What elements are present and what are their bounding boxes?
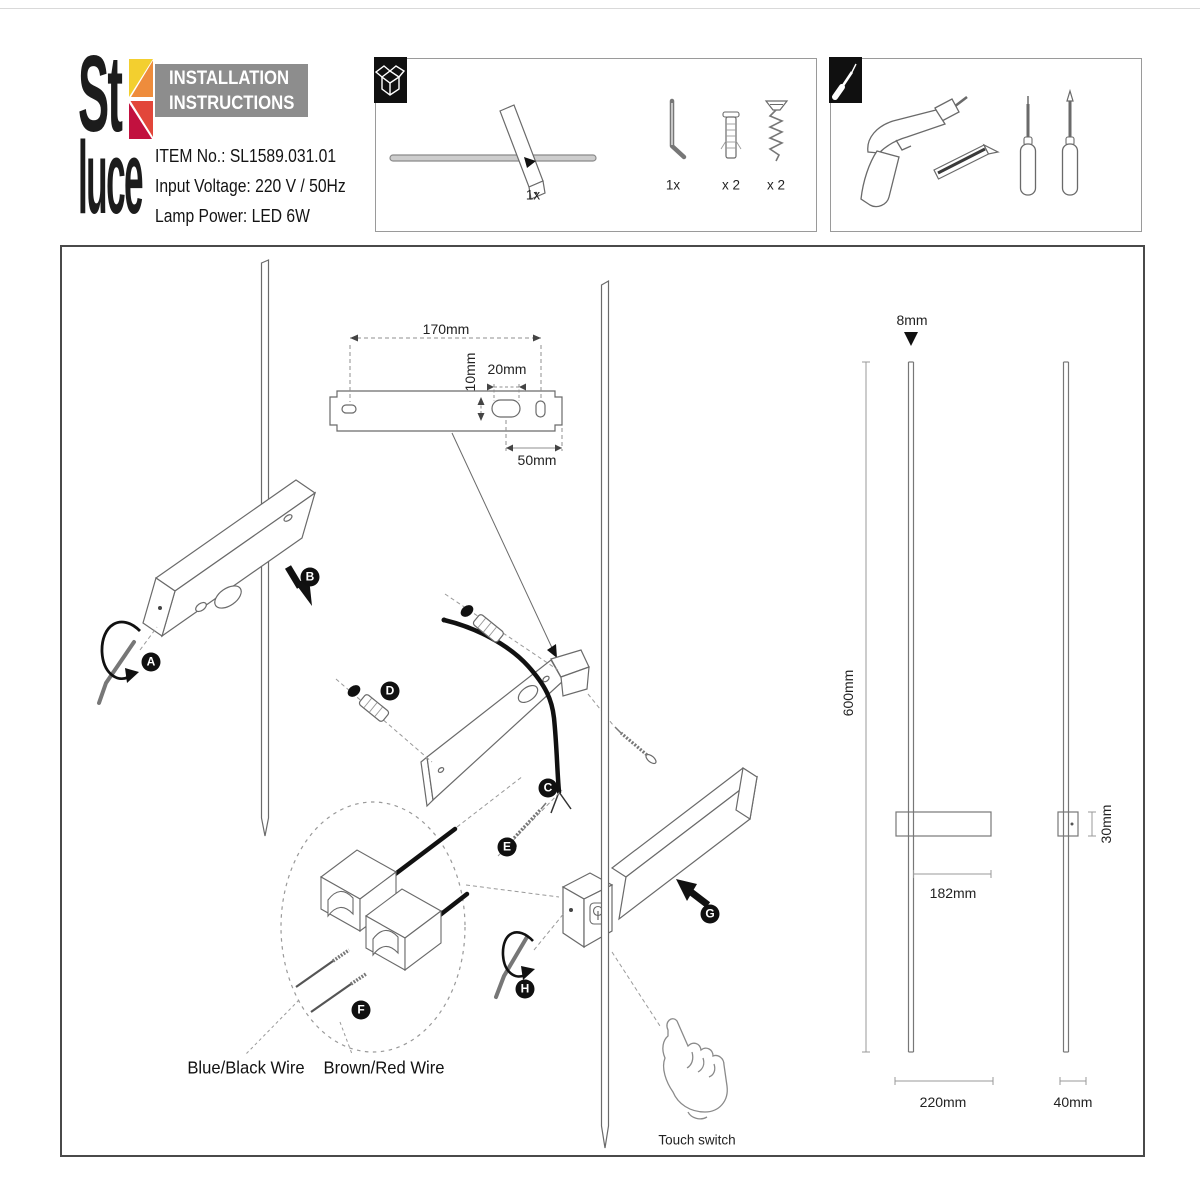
rod-diameter-dim: 8mm — [896, 312, 927, 328]
side-depth-dim: 40mm — [1054, 1094, 1093, 1110]
step-badge-d: D — [381, 682, 400, 701]
lamp-drawing — [390, 105, 596, 199]
bracket-hole-dim: 20mm — [488, 361, 527, 377]
step-badge-g: G — [701, 905, 720, 924]
diagram-artwork — [0, 0, 1200, 1200]
body-depth-dim: 30mm — [1098, 805, 1114, 844]
height-dim: 600mm — [840, 670, 856, 717]
lamp-body-exploded — [143, 480, 315, 636]
screw-drawing — [766, 101, 787, 161]
mount-screw-upper — [588, 694, 658, 765]
rotate-arrow-a — [102, 622, 140, 683]
body-length-dim: 182mm — [930, 885, 977, 901]
bracket-template — [330, 391, 562, 431]
wall-plug-upper — [445, 594, 558, 670]
screw-qty-label: x 2 — [767, 178, 785, 193]
screwdrivers-drawing — [1021, 91, 1078, 195]
package-box-icon — [374, 57, 407, 103]
touch-leader-line — [612, 952, 660, 1026]
wall-bracket-3d — [421, 650, 589, 806]
screwdriver-icon — [829, 57, 862, 103]
dimension-views — [862, 332, 1096, 1085]
step-badge-b: B — [301, 568, 320, 587]
step-badge-c: C — [539, 779, 558, 798]
body-width-dim: 220mm — [920, 1094, 967, 1110]
step-badge-h: H — [516, 980, 535, 999]
bracket-offset-dim: 10mm — [462, 353, 478, 392]
bracket-length-dim: 170mm — [423, 321, 470, 337]
live-wire-label: Brown/Red Wire — [323, 1058, 444, 1079]
wall-plug-drawing — [721, 112, 741, 158]
step-badge-f: F — [352, 1001, 371, 1020]
lamp-qty-label: 1x — [526, 188, 540, 203]
lamp-body-mounted — [612, 768, 757, 919]
hex-key-drawing — [672, 101, 684, 157]
touch-switch-label: Touch switch — [658, 1133, 735, 1148]
bracket-spacing-dim: 50mm — [518, 452, 557, 468]
neutral-wire-label: Blue/Black Wire — [187, 1058, 304, 1079]
hex-key-qty-label: 1x — [666, 178, 680, 193]
wall-rod-right — [602, 281, 609, 1148]
drill-drawing — [861, 97, 967, 207]
step-badge-e: E — [498, 838, 517, 857]
pointing-hand-drawing — [663, 1019, 727, 1119]
wall-plug-qty-label: x 2 — [722, 178, 740, 193]
step-badge-a: A — [142, 653, 161, 672]
direction-arrow-g — [676, 879, 708, 905]
pencil-drawing — [934, 145, 998, 179]
instruction-sheet: { "brand": { "logo_top": "St", "logo_bot… — [0, 0, 1200, 1200]
